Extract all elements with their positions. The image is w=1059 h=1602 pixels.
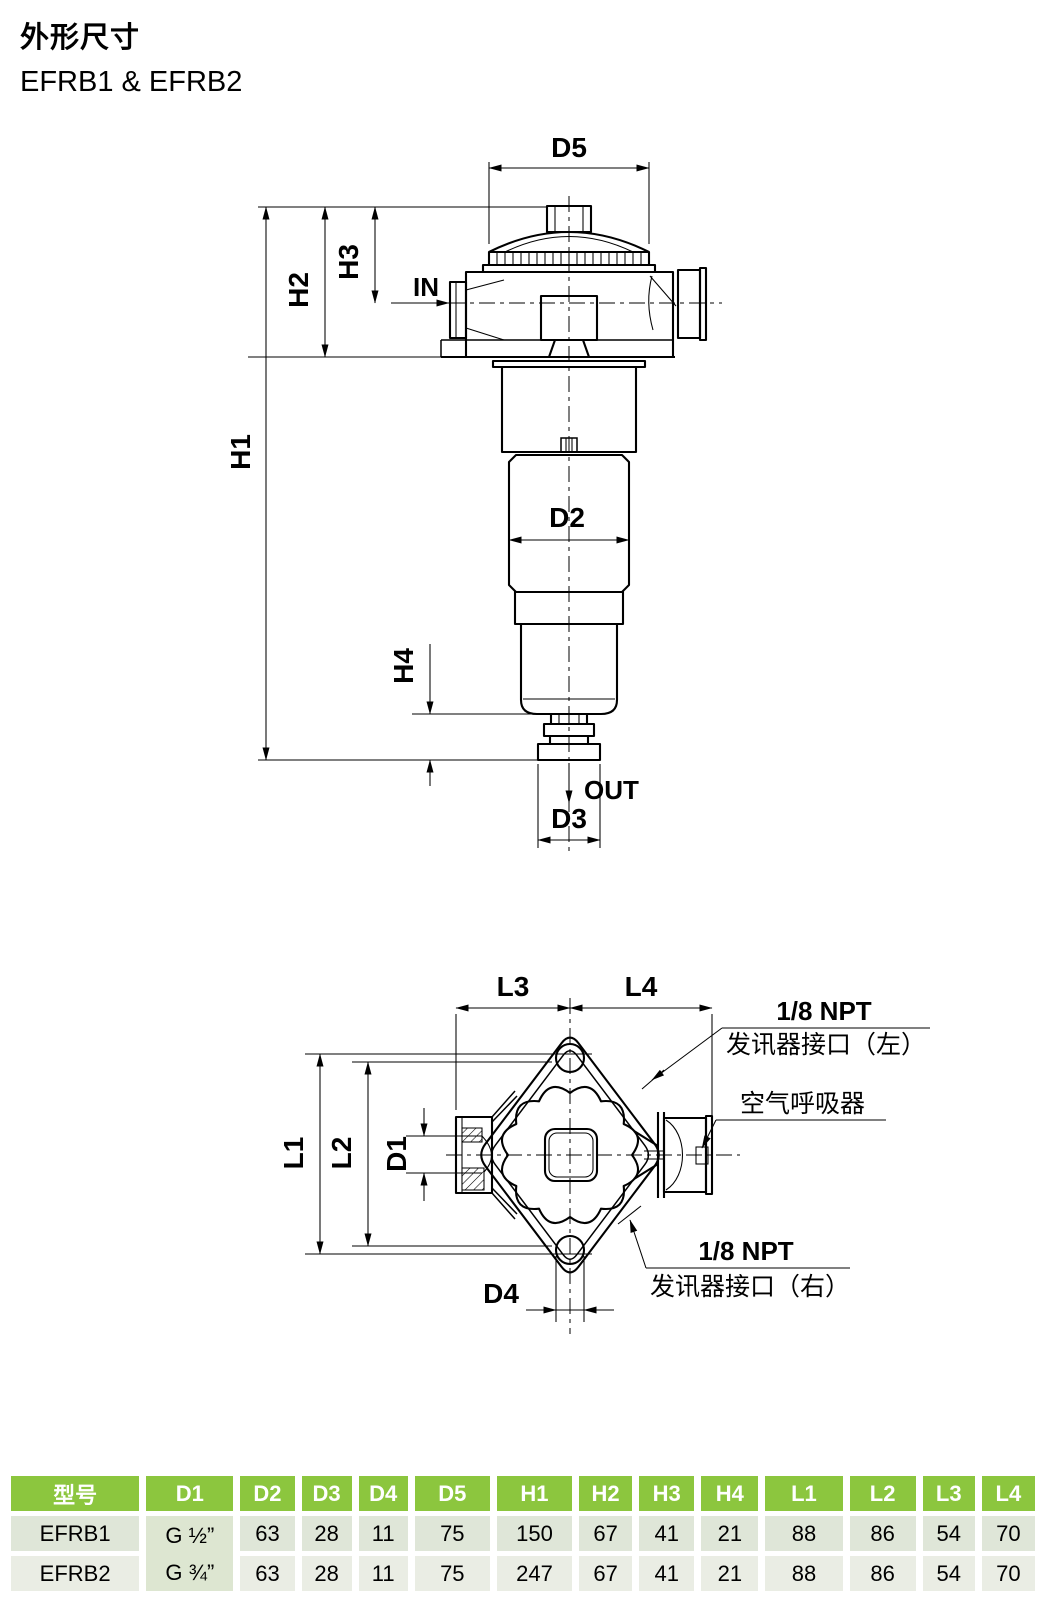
value-cell: 11 [359, 1516, 408, 1551]
value-cell: 21 [701, 1516, 758, 1551]
col-header: L4 [982, 1476, 1035, 1511]
dimension-l2: L2 [326, 1062, 368, 1246]
d1-value: G ¾” [146, 1554, 233, 1591]
dimension-h3: H3 [333, 207, 375, 303]
annotation-breather: 空气呼吸器 [702, 1090, 886, 1148]
value-cell: 63 [240, 1556, 294, 1591]
dim-label-h4: H4 [388, 648, 419, 684]
value-cell: 247 [497, 1556, 572, 1591]
table-header-row: 型号 D1 D2 D3 D4 D5 H1 H2 H3 H4 L1 L2 L3 L… [11, 1476, 1035, 1511]
col-header: D4 [359, 1476, 408, 1511]
inlet-label: IN [413, 272, 439, 302]
model-cell: EFRB2 [11, 1556, 139, 1591]
annotation-right-sensor-text: 发讯器接口（右） [650, 1273, 850, 1301]
dim-label-l4: L4 [625, 971, 658, 1002]
value-cell: 75 [415, 1516, 490, 1551]
value-cell: 54 [923, 1556, 975, 1591]
dim-label-d1: D1 [381, 1136, 412, 1172]
dimension-d4: D4 [483, 1256, 614, 1322]
col-header: L3 [923, 1476, 975, 1511]
front-view: D5 H1 H2 H3 IN D2 [225, 132, 722, 856]
value-cell: 67 [579, 1516, 632, 1551]
col-header: H1 [497, 1476, 572, 1511]
dim-label-d2: D2 [549, 502, 585, 533]
dim-label-h3: H3 [333, 244, 364, 280]
inlet-marker: IN [391, 272, 449, 303]
dim-label-l3: L3 [497, 971, 530, 1002]
filter-head [441, 268, 706, 357]
annotation-breather-text: 空气呼吸器 [740, 1090, 865, 1118]
col-header: 型号 [11, 1476, 139, 1511]
model-cell: EFRB1 [11, 1516, 139, 1551]
value-cell: 150 [497, 1516, 572, 1551]
annotation-left-sensor-text: 发讯器接口（左） [726, 1031, 926, 1059]
col-header: H3 [639, 1476, 694, 1511]
dim-label-d4: D4 [483, 1278, 519, 1309]
col-header: L1 [765, 1476, 842, 1511]
value-cell: 86 [850, 1516, 916, 1551]
col-header: D5 [415, 1476, 490, 1511]
value-cell: 63 [240, 1516, 294, 1551]
col-header: H2 [579, 1476, 632, 1511]
dimension-l1: L1 [278, 1054, 320, 1254]
value-cell: 75 [415, 1556, 490, 1591]
col-header: D2 [240, 1476, 294, 1511]
dimension-drawings: D5 H1 H2 H3 IN D2 [0, 0, 1059, 1460]
value-cell: 88 [765, 1556, 842, 1591]
col-header: D3 [302, 1476, 352, 1511]
annotation-left-sensor: 1/8 NPT 发讯器接口（左） [642, 996, 930, 1089]
col-header: D1 [146, 1476, 233, 1511]
value-cell: 11 [359, 1556, 408, 1591]
table-row: EFRB1 G ½” G ¾” 63 28 11 75 150 67 41 21… [11, 1516, 1035, 1551]
dimension-h1: H1 [225, 207, 266, 760]
d1-value: G ½” [146, 1517, 233, 1554]
value-cell: 21 [701, 1556, 758, 1591]
col-header: L2 [850, 1476, 916, 1511]
dimension-l3-l4: L3 L4 [456, 971, 712, 1116]
value-cell: 41 [639, 1516, 694, 1551]
value-cell: 41 [639, 1556, 694, 1591]
value-cell: 88 [765, 1516, 842, 1551]
dim-label-d3: D3 [551, 803, 587, 834]
dim-label-h2: H2 [283, 272, 314, 308]
value-cell: 70 [982, 1556, 1035, 1591]
value-cell: 28 [302, 1516, 352, 1551]
value-cell: 54 [923, 1516, 975, 1551]
value-cell: 28 [302, 1556, 352, 1591]
dim-label-l1: L1 [278, 1137, 309, 1170]
d1-merged-cell: G ½” G ¾” [146, 1516, 233, 1591]
value-cell: 86 [850, 1556, 916, 1591]
outlet-label: OUT [584, 775, 639, 805]
dim-label-d5: D5 [551, 132, 587, 163]
top-view: L1 L2 D1 L3 L4 [278, 971, 930, 1334]
outlet-marker: OUT [569, 763, 639, 805]
dimension-h4: H4 [388, 644, 549, 786]
dim-label-h1: H1 [225, 434, 256, 470]
annotation-right-sensor: 1/8 NPT 发讯器接口（右） [618, 1206, 850, 1301]
dimension-table: 型号 D1 D2 D3 D4 D5 H1 H2 H3 H4 L1 L2 L3 L… [4, 1471, 1042, 1596]
col-header: H4 [701, 1476, 758, 1511]
dim-label-l2: L2 [326, 1137, 357, 1170]
annotation-right-npt: 1/8 NPT [698, 1236, 793, 1266]
datasheet-page: 外形尺寸 EFRB1 & EFRB2 [0, 0, 1059, 1602]
annotation-left-npt: 1/8 NPT [776, 996, 871, 1026]
value-cell: 70 [982, 1516, 1035, 1551]
value-cell: 67 [579, 1556, 632, 1591]
